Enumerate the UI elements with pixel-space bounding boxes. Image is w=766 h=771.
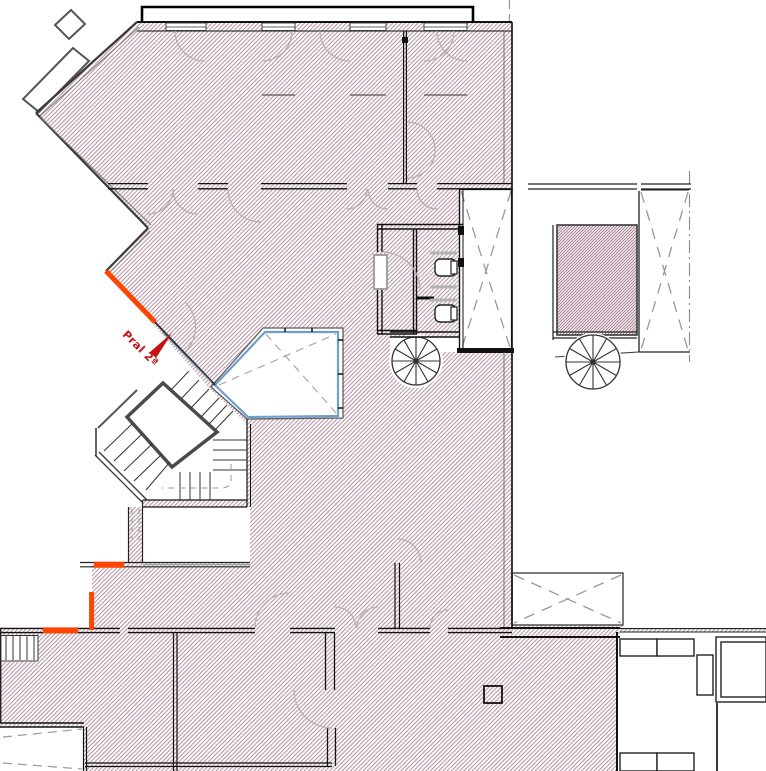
hatch-region [0, 22, 766, 771]
light-well-right [639, 171, 690, 362]
floor-plan-canvas [0, 0, 766, 771]
elevator-shaft [457, 189, 514, 353]
balcony-outline [142, 7, 473, 22]
floor-plan: Pral 2ª [0, 0, 766, 771]
spiral-stair-left [392, 337, 440, 385]
spiral-stair-right [566, 335, 620, 389]
light-well-bottom [512, 573, 623, 625]
furniture [620, 637, 766, 771]
